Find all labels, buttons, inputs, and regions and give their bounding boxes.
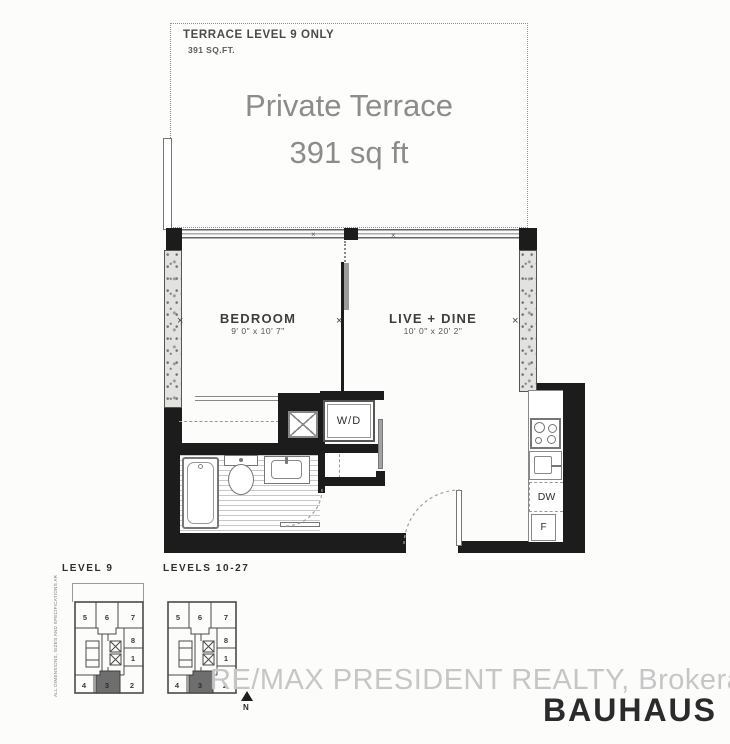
cooktop bbox=[530, 418, 561, 449]
unit-number: 6 bbox=[105, 613, 109, 622]
terrace-tag-area: 391 SQ.FT. bbox=[188, 45, 235, 55]
concrete-column-left bbox=[164, 250, 182, 408]
dimension-mark-icon: × bbox=[177, 316, 183, 327]
burner-icon bbox=[534, 422, 545, 433]
unit-number: 5 bbox=[83, 613, 87, 622]
wd-wall-top bbox=[320, 391, 384, 400]
shaft-xbox-icon bbox=[288, 411, 318, 438]
concrete-column-right bbox=[519, 250, 537, 392]
unit-number: 6 bbox=[198, 613, 202, 622]
unit-number: 2 bbox=[130, 681, 134, 690]
entry-door-arc bbox=[404, 490, 460, 544]
terrace-title-line1: Private Terrace bbox=[170, 88, 528, 124]
dishwasher-label: DW bbox=[538, 491, 556, 503]
window-mark-icon: × bbox=[391, 232, 396, 240]
linen-closet bbox=[322, 453, 378, 478]
burner-icon bbox=[547, 435, 556, 444]
unit-number: 1 bbox=[131, 654, 135, 663]
terrace-tag-title: TERRACE LEVEL 9 ONLY bbox=[183, 29, 334, 41]
dimension-mark-icon: × bbox=[512, 316, 518, 327]
unit-number-highlighted: 3 bbox=[198, 681, 202, 690]
unit-number: 7 bbox=[224, 613, 228, 622]
bathtub-basin bbox=[187, 462, 214, 524]
dimension-mark-icon: × bbox=[336, 316, 342, 327]
unit-number: 4 bbox=[175, 681, 180, 690]
unit-number-highlighted: 3 bbox=[105, 681, 109, 690]
bath-wall-right bbox=[318, 443, 325, 493]
toilet-button-icon bbox=[239, 458, 243, 462]
unit-number: 8 bbox=[131, 636, 135, 645]
unit-number: 1 bbox=[224, 654, 228, 663]
window-mark-icon: × bbox=[311, 231, 316, 239]
kitchen-sink bbox=[529, 451, 562, 480]
fridge: F bbox=[531, 514, 556, 541]
window-mullion-center bbox=[344, 228, 358, 240]
keyplan-level9: 5 6 7 8 1 4 3 2 bbox=[74, 601, 144, 694]
burner-icon bbox=[535, 437, 542, 444]
wd-sliding-door bbox=[378, 419, 383, 469]
linen-wall-stub bbox=[376, 471, 385, 486]
unit-number: 4 bbox=[82, 681, 87, 690]
partition-glass-dotted bbox=[344, 241, 346, 262]
kitchen-sink-basin bbox=[534, 456, 552, 474]
dishwasher: DW bbox=[529, 482, 563, 512]
burner-icon bbox=[548, 424, 557, 433]
closet-rod bbox=[179, 421, 279, 422]
bathtub-drain-icon bbox=[198, 464, 203, 469]
linen-wall-bottom bbox=[320, 477, 382, 486]
kitchen-faucet-icon bbox=[551, 465, 561, 467]
bedroom-label: BEDROOM bbox=[196, 311, 320, 326]
wall-right bbox=[563, 383, 585, 551]
floorplan-sheet: TERRACE LEVEL 9 ONLY 391 SQ.FT. Private … bbox=[0, 0, 730, 744]
entry-door-leaf bbox=[456, 490, 462, 546]
wd-wall-bottom bbox=[320, 444, 378, 453]
wall-bottom-right bbox=[458, 541, 585, 553]
keyplan1-label: LEVEL 9 bbox=[62, 563, 114, 574]
disclaimer-vertical-text: ALL DIMENSIONS, SIZES AND SPECIFICATIONS… bbox=[53, 575, 62, 697]
bath-wall-top bbox=[164, 443, 325, 455]
linen-closet-divider bbox=[339, 454, 340, 478]
vanity-faucet-icon bbox=[285, 457, 288, 464]
toilet-bowl bbox=[228, 464, 254, 495]
terrace-title-line2: 391 sq ft bbox=[170, 135, 528, 171]
unit-number: 7 bbox=[131, 613, 135, 622]
unit-number: 8 bbox=[224, 636, 228, 645]
unit-number: 5 bbox=[176, 613, 180, 622]
north-label: N bbox=[243, 703, 249, 712]
wd-box: W/D bbox=[323, 400, 375, 442]
terrace-railing bbox=[163, 138, 172, 230]
bath-door-leaf bbox=[280, 522, 320, 527]
closet-shelf bbox=[195, 396, 281, 401]
bedroom-dims: 9' 0" x 10' 7" bbox=[196, 326, 320, 336]
bedroom-sliding-door bbox=[344, 263, 349, 310]
bathtub bbox=[182, 457, 219, 529]
keyplan2-label: LEVELS 10-27 bbox=[163, 563, 249, 574]
brand-logo: BAUHAUS bbox=[543, 692, 717, 729]
fridge-label: F bbox=[540, 522, 546, 533]
wall-bottom-left bbox=[164, 533, 406, 553]
keyplan1-terrace-outline bbox=[72, 583, 144, 602]
livedine-label: LIVE + DINE bbox=[370, 311, 496, 326]
livedine-dims: 10' 0" x 20' 2" bbox=[370, 326, 496, 336]
wd-label: W/D bbox=[337, 415, 361, 427]
